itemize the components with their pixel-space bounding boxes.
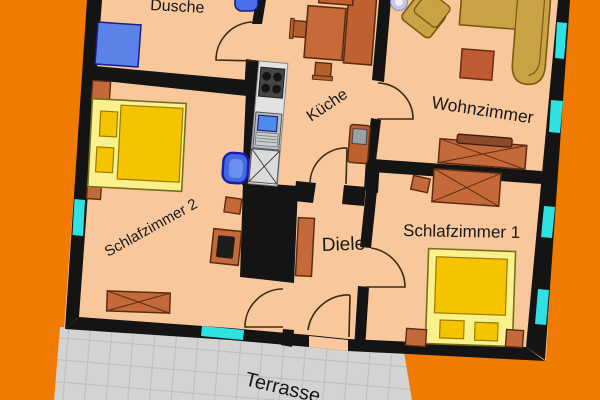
svg-text:Dusche: Dusche [150, 0, 205, 17]
svg-text:Diele: Diele [321, 233, 365, 255]
svg-text:Schlafzimmer 1: Schlafzimmer 1 [403, 221, 520, 242]
